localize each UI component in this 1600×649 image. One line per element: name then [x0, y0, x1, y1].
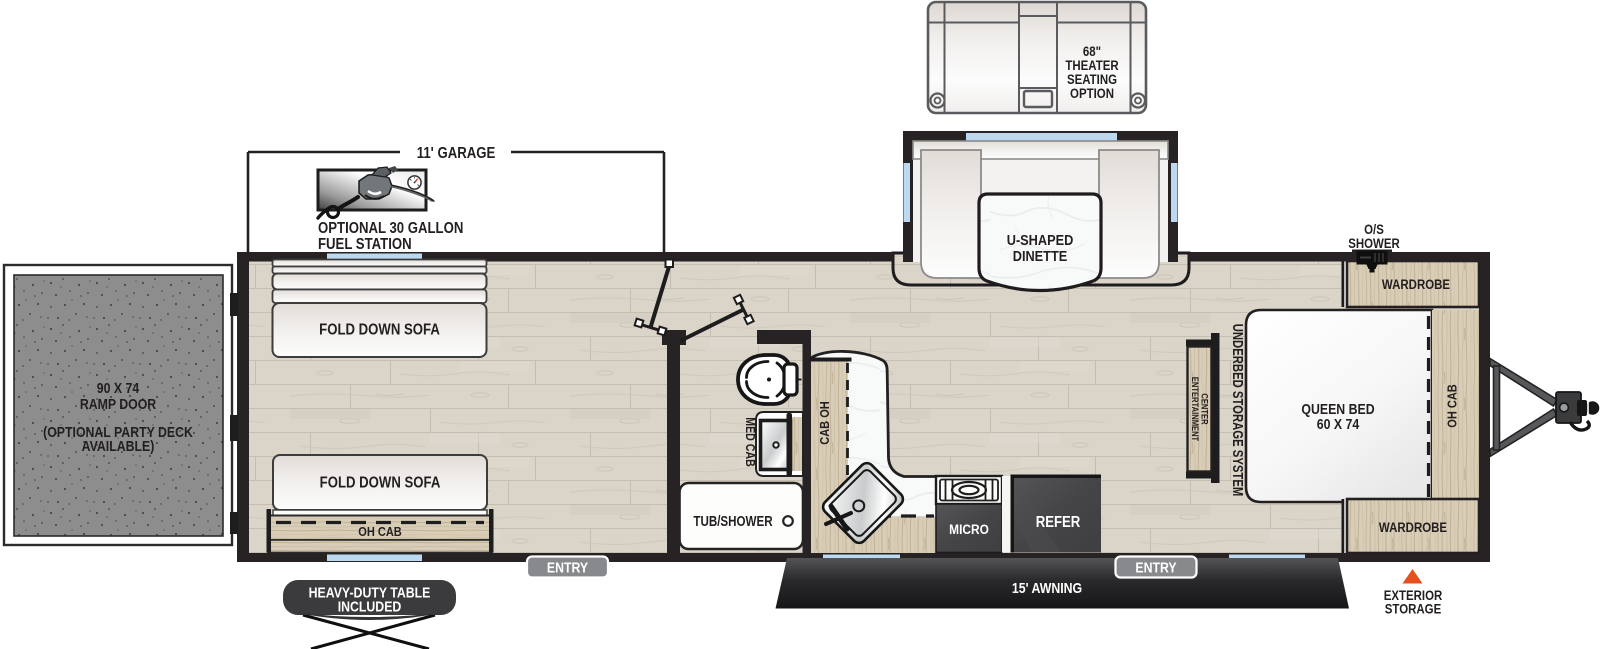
svg-text:90 X 74: 90 X 74 — [97, 380, 140, 396]
svg-text:MICRO: MICRO — [949, 521, 989, 537]
svg-text:AVAILABLE): AVAILABLE) — [82, 438, 155, 454]
svg-text:15' AWNING: 15' AWNING — [1012, 580, 1082, 596]
svg-text:ENTERTAINMENT: ENTERTAINMENT — [1190, 377, 1201, 442]
svg-text:INCLUDED: INCLUDED — [338, 599, 402, 615]
svg-text:THEATER: THEATER — [1065, 58, 1118, 73]
svg-text:REFER: REFER — [1036, 514, 1081, 531]
svg-text:WARDROBE: WARDROBE — [1382, 277, 1450, 292]
svg-text:MED CAB: MED CAB — [743, 417, 757, 467]
svg-text:OPTION: OPTION — [1070, 86, 1114, 101]
svg-text:RAMP DOOR: RAMP DOOR — [80, 396, 157, 412]
svg-text:ENTRY: ENTRY — [1135, 560, 1176, 576]
svg-text:ENTRY: ENTRY — [547, 560, 588, 576]
svg-text:WARDROBE: WARDROBE — [1379, 520, 1447, 535]
svg-text:FOLD DOWN SOFA: FOLD DOWN SOFA — [320, 475, 441, 492]
svg-text:O/S: O/S — [1364, 222, 1384, 237]
svg-text:FOLD DOWN SOFA: FOLD DOWN SOFA — [319, 322, 440, 339]
svg-text:OH CAB: OH CAB — [1445, 384, 1460, 428]
svg-text:OH CAB: OH CAB — [358, 524, 402, 539]
svg-text:11' GARAGE: 11' GARAGE — [417, 145, 496, 162]
svg-text:68": 68" — [1083, 44, 1101, 59]
svg-text:TUB/SHOWER: TUB/SHOWER — [693, 513, 773, 530]
svg-text:CENTER: CENTER — [1199, 393, 1210, 425]
svg-text:OPTIONAL 30 GALLON: OPTIONAL 30 GALLON — [318, 220, 463, 237]
svg-text:SEATING: SEATING — [1067, 72, 1117, 87]
svg-text:CAB OH: CAB OH — [817, 401, 832, 445]
svg-text:60 X 74: 60 X 74 — [1317, 416, 1360, 432]
svg-text:STORAGE: STORAGE — [1385, 602, 1441, 617]
svg-text:U-SHAPED: U-SHAPED — [1007, 231, 1074, 248]
svg-text:UNDERBED STORAGE SYSTEM: UNDERBED STORAGE SYSTEM — [1230, 324, 1247, 497]
svg-text:SHOWER: SHOWER — [1348, 236, 1400, 251]
svg-text:DINETTE: DINETTE — [1013, 247, 1067, 264]
svg-text:FUEL STATION: FUEL STATION — [318, 236, 412, 253]
svg-text:QUEEN BED: QUEEN BED — [1301, 401, 1374, 417]
